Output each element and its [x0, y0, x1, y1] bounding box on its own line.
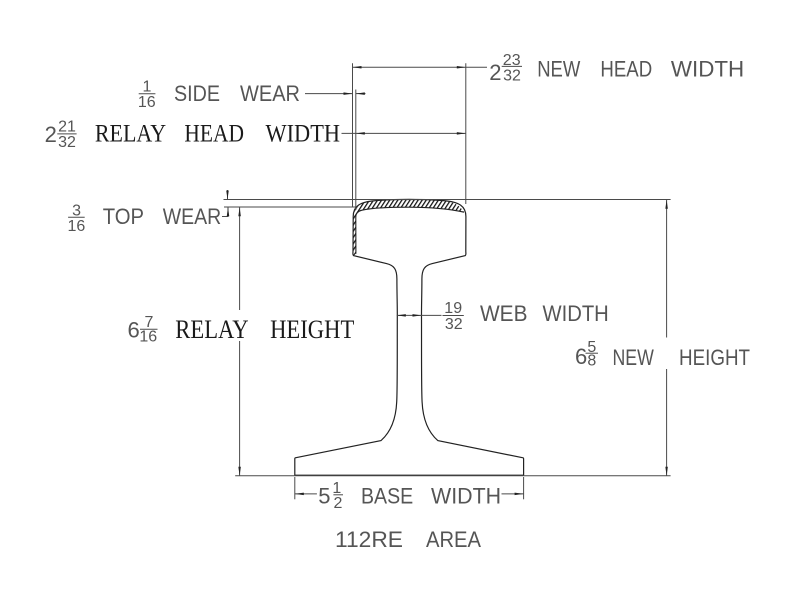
svg-text:32: 32 — [503, 68, 521, 85]
svg-text:6: 6 — [575, 344, 587, 369]
svg-text:2: 2 — [489, 60, 501, 85]
svg-text:6: 6 — [128, 318, 140, 343]
svg-text:AREA: AREA — [426, 527, 481, 552]
svg-text:WEAR: WEAR — [163, 204, 222, 229]
svg-text:8: 8 — [587, 353, 596, 370]
svg-text:NEW: NEW — [537, 57, 580, 82]
svg-text:RELAY: RELAY — [175, 315, 248, 344]
svg-text:16: 16 — [138, 94, 156, 111]
svg-text:WIDTH: WIDTH — [431, 484, 501, 509]
svg-text:HEAD: HEAD — [184, 120, 244, 147]
svg-text:19: 19 — [444, 300, 462, 317]
svg-text:SIDE: SIDE — [174, 81, 220, 106]
svg-text:2: 2 — [45, 122, 57, 147]
svg-text:RELAY: RELAY — [95, 120, 166, 147]
svg-text:TOP: TOP — [103, 204, 144, 229]
svg-text:WIDTH: WIDTH — [543, 301, 609, 326]
svg-text:32: 32 — [58, 134, 76, 151]
svg-text:BASE: BASE — [361, 484, 413, 509]
svg-text:2: 2 — [334, 495, 343, 512]
svg-text:HEAD: HEAD — [600, 57, 652, 82]
svg-text:HEIGHT: HEIGHT — [270, 315, 354, 344]
svg-text:WIDTH: WIDTH — [671, 57, 744, 82]
svg-text:HEIGHT: HEIGHT — [679, 345, 750, 370]
svg-text:WEB: WEB — [480, 301, 528, 326]
svg-text:5: 5 — [318, 484, 330, 509]
svg-text:32: 32 — [445, 316, 463, 333]
svg-text:WIDTH: WIDTH — [266, 120, 341, 147]
svg-text:16: 16 — [139, 329, 157, 346]
svg-text:112RE: 112RE — [335, 527, 403, 552]
svg-text:21: 21 — [58, 118, 76, 135]
svg-text:16: 16 — [68, 218, 86, 235]
svg-text:NEW: NEW — [613, 345, 654, 370]
svg-text:WEAR: WEAR — [240, 81, 300, 106]
